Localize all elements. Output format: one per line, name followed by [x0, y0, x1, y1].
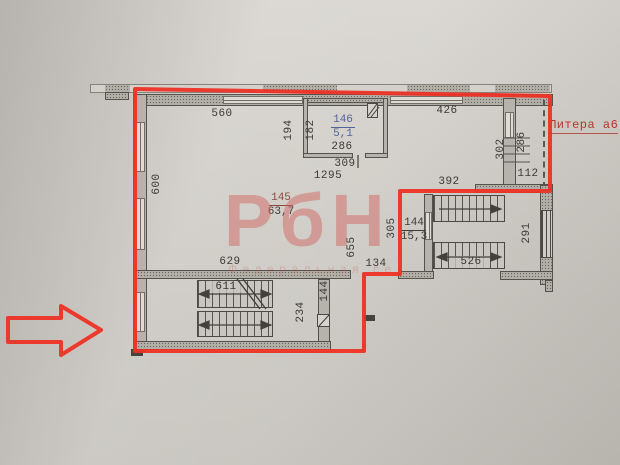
stair-direction-arrows [199, 205, 501, 329]
entrance-arrow [8, 306, 101, 355]
linework-overlay [0, 0, 620, 465]
floor-plan-photo: 560 426 600 194 182 286 309 1295 302 286… [0, 0, 620, 465]
strip-tick-lines [503, 138, 530, 162]
panel-diagonal [319, 315, 329, 326]
vent-hatch [368, 104, 379, 117]
red-outline [135, 89, 550, 351]
